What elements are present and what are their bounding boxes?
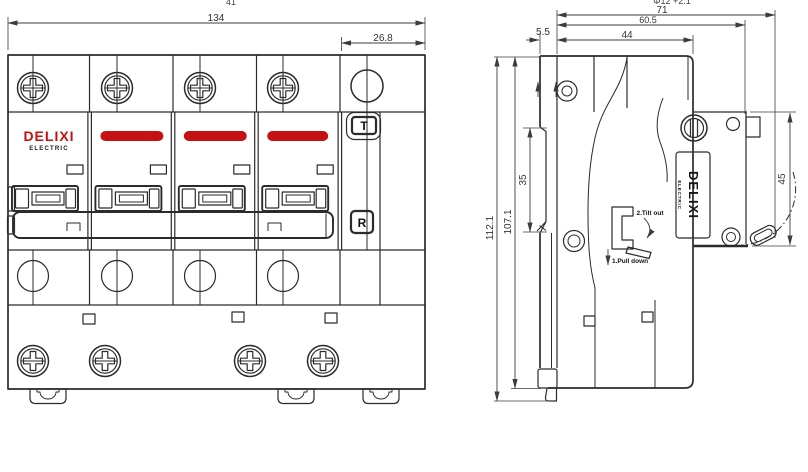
toggle-handles: [8, 186, 334, 238]
dim-module-width: 26.8: [373, 33, 393, 44]
pole-handle: [12, 186, 78, 211]
dim-depth-body: 60.5: [639, 15, 657, 25]
red-pole-bars: [100, 131, 328, 141]
pole-handle: [95, 186, 161, 211]
reset-button: R: [351, 211, 373, 233]
clip-profile: [612, 207, 633, 249]
dim-depth-front: 44: [621, 30, 633, 41]
instruction-pull: 1.Pull down: [612, 258, 648, 265]
breaker-technical-drawing: DELIXI ELECTRIC: [0, 0, 808, 472]
front-view: DELIXI ELECTRIC: [8, 0, 426, 404]
brand-text-side: DELIXI: [686, 171, 701, 219]
dim-width-total: 134: [208, 13, 225, 24]
side-dimensions: 71 60.5 44 5.5 112.1 107.1 35 45 Φ12 +2.…: [485, 0, 796, 401]
phillips-screw: [235, 346, 266, 377]
test-button-label: T: [360, 119, 368, 133]
pole-handle: [179, 186, 245, 211]
technical-drawing-page: DELIXI ELECTRIC: [0, 0, 808, 472]
handle-tie-bar: [13, 212, 333, 238]
test-button: T: [347, 113, 381, 140]
mounting-foot: [363, 389, 399, 404]
brand-subtext: ELECTRIC: [29, 146, 69, 152]
reset-button-label: R: [358, 216, 367, 230]
din-release-instructions: 2.Tilt out 1.Pull down: [608, 207, 664, 265]
brand-text: DELIXI: [23, 128, 74, 144]
phillips-screw: [308, 346, 339, 377]
dim-terminal-zone: 45: [777, 173, 788, 185]
brand-subtext-side: ELECTRIC: [677, 180, 682, 209]
side-body-outline: [537, 56, 693, 401]
rcd-module-top: [351, 55, 383, 250]
dim-clipped-note: Φ12 +2.1: [653, 0, 690, 6]
delixi-logo: DELIXI ELECTRIC: [23, 128, 74, 152]
side-view: DELIXI ELECTRIC 2.Tilt out 1.Pull down: [485, 0, 796, 401]
dim-clipped-top: 41: [226, 0, 236, 7]
phillips-screw: [18, 346, 49, 377]
front-dimensions: 134 26.8 41: [8, 0, 425, 51]
pole-handle: [262, 186, 328, 211]
dim-depth-total: 71: [656, 5, 668, 16]
dim-height-body: 107.1: [503, 209, 514, 234]
phillips-screw: [90, 346, 121, 377]
dim-height-total: 112.1: [485, 215, 496, 240]
instruction-tilt: 2.Tilt out: [637, 210, 665, 217]
mounting-foot: [30, 389, 66, 404]
dim-rail-slot: 35: [518, 174, 529, 186]
mounting-foot: [278, 389, 314, 404]
dim-rail-offset: 5.5: [536, 27, 550, 38]
indicator-windows: [67, 165, 333, 174]
